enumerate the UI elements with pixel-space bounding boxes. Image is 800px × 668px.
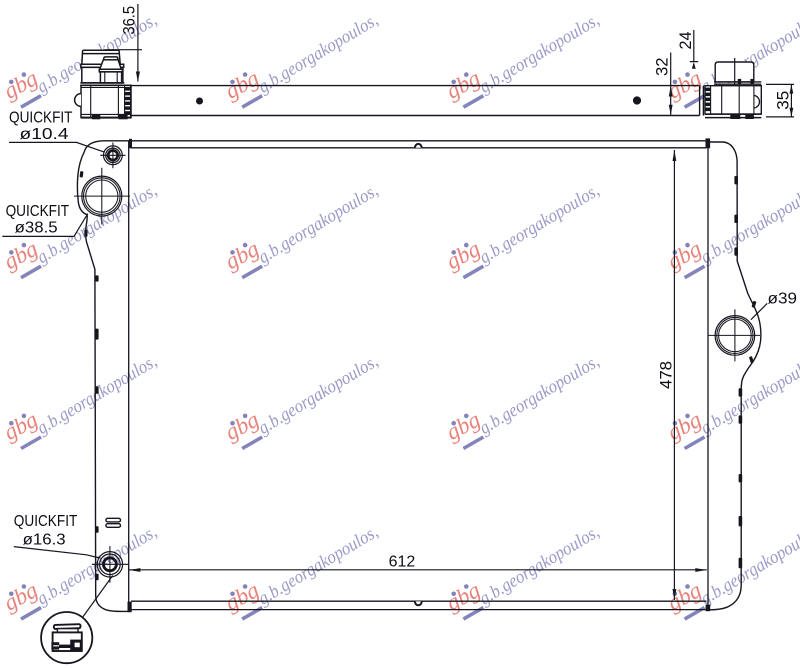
svg-text:ø38.5: ø38.5	[15, 220, 58, 237]
svg-text:ø39: ø39	[768, 291, 798, 308]
svg-text:35: 35	[774, 91, 793, 110]
svg-text:478: 478	[657, 361, 676, 389]
svg-text:612: 612	[389, 553, 416, 570]
svg-text:ø16.3: ø16.3	[23, 532, 66, 549]
svg-text:ø10.4: ø10.4	[20, 126, 69, 143]
svg-text:QUICKFIT: QUICKFIT	[14, 513, 78, 530]
svg-text:36.5: 36.5	[120, 6, 139, 35]
svg-text:32: 32	[653, 58, 672, 77]
svg-text:QUICKFIT: QUICKFIT	[9, 110, 73, 127]
svg-text:QUICKFIT: QUICKFIT	[6, 203, 70, 220]
svg-text:24: 24	[676, 32, 695, 50]
